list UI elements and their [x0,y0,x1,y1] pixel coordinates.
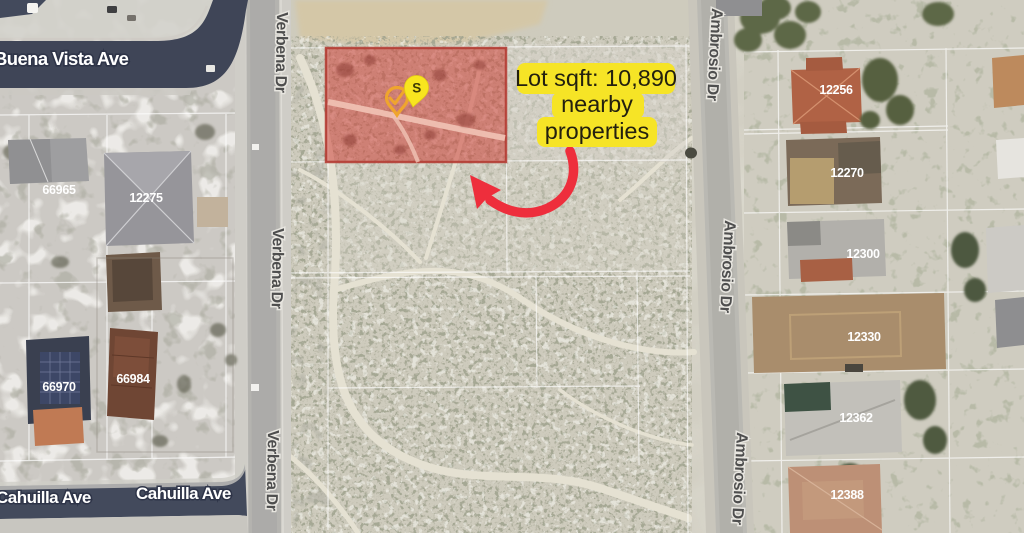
svg-text:66970: 66970 [42,380,76,394]
svg-text:nearby: nearby [561,91,633,117]
svg-text:12270: 12270 [830,166,864,180]
svg-text:S: S [412,81,421,96]
svg-text:12330: 12330 [847,330,881,344]
svg-text:Verbena Dr: Verbena Dr [263,430,281,511]
svg-text:Cahuilla Ave: Cahuilla Ave [0,488,91,507]
svg-text:12256: 12256 [819,83,853,97]
svg-text:66965: 66965 [42,183,76,197]
svg-text:12362: 12362 [839,411,873,425]
svg-text:12388: 12388 [830,488,864,502]
svg-text:12275: 12275 [129,191,163,205]
svg-text:Verbena Dr: Verbena Dr [272,12,290,93]
svg-text:Verbena Dr: Verbena Dr [268,228,286,309]
svg-text:12300: 12300 [846,247,880,261]
svg-text:properties: properties [545,118,650,144]
svg-text:Cahuilla Ave: Cahuilla Ave [136,484,231,503]
svg-text:66984: 66984 [116,372,150,386]
svg-text:Lot sqft: 10,890: Lot sqft: 10,890 [515,65,677,91]
svg-text:Buena Vista Ave: Buena Vista Ave [0,48,129,69]
